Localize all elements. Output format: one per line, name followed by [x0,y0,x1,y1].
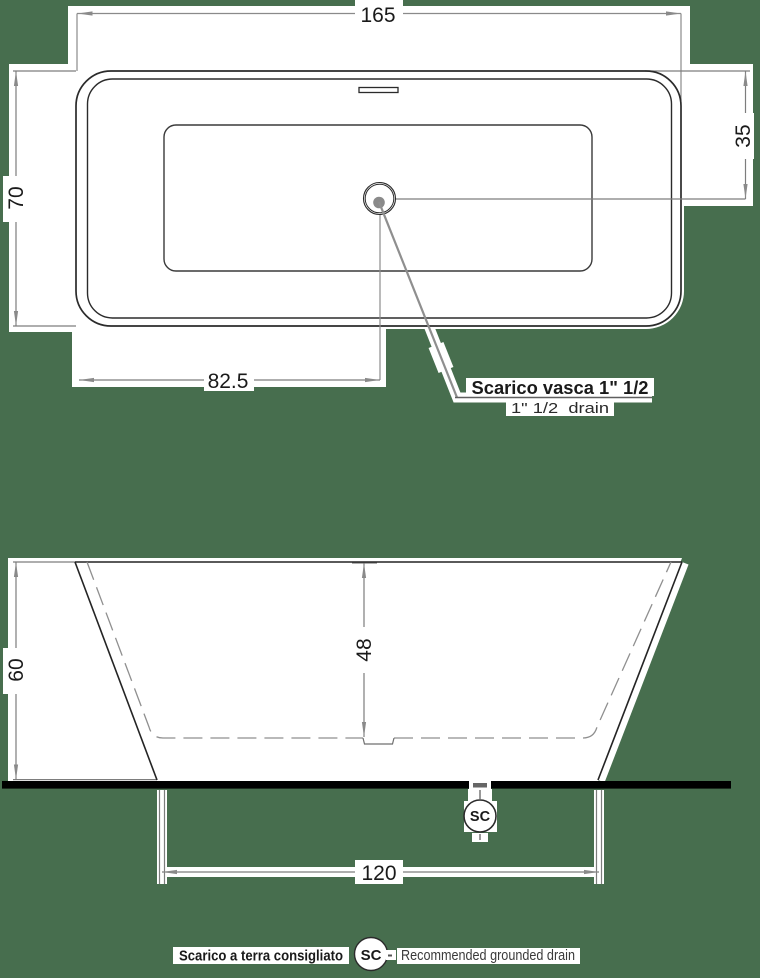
svg-text:Scarico a terra consigliato: Scarico a terra consigliato [179,948,343,965]
svg-text:165: 165 [360,4,395,27]
svg-text:SC: SC [361,947,382,964]
svg-text:35: 35 [732,124,755,147]
svg-text:60: 60 [5,658,28,681]
svg-text:70: 70 [5,186,28,209]
svg-text:82.5: 82.5 [208,370,249,393]
svg-text:120: 120 [361,862,396,885]
svg-text:1" 1/2 drain: 1" 1/2 drain [511,400,609,417]
svg-text:Recommended grounded drain: Recommended grounded drain [401,947,575,964]
svg-text:48: 48 [353,638,376,661]
svg-text:SC: SC [470,809,491,825]
svg-text:Scarico vasca 1" 1/2: Scarico vasca 1" 1/2 [472,378,649,398]
